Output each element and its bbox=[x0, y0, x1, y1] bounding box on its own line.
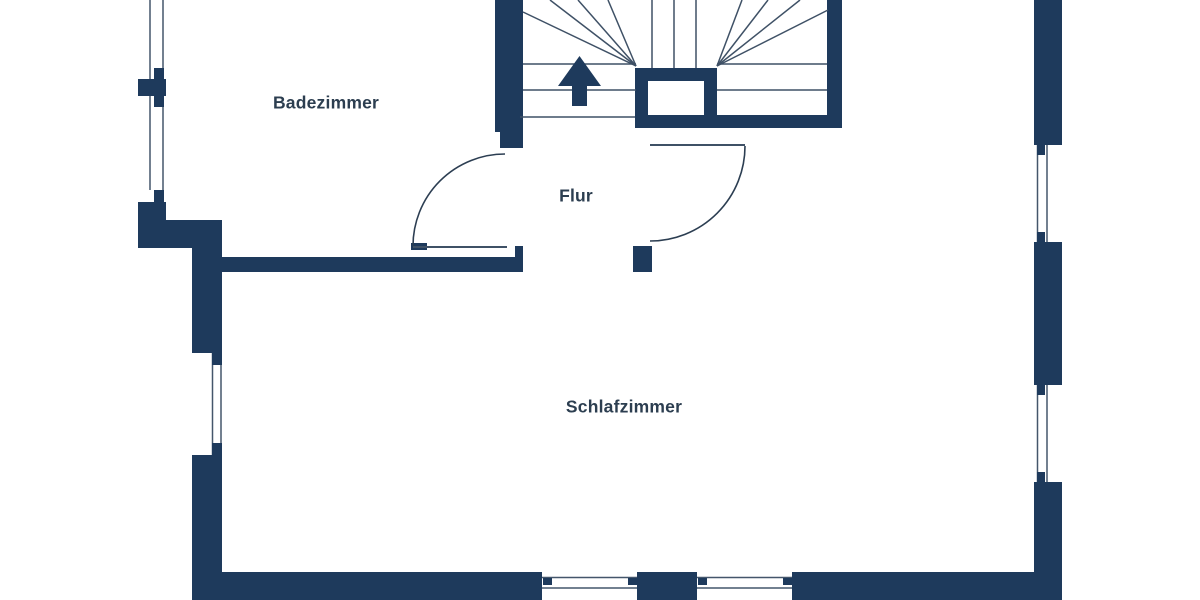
window-end-cap bbox=[154, 68, 164, 80]
wall-segment bbox=[192, 248, 222, 353]
wall-segment bbox=[1034, 482, 1062, 600]
bottom-exterior-wall bbox=[222, 572, 1034, 600]
room-label-badezimmer: Badezimmer bbox=[273, 93, 379, 114]
wall-segment bbox=[192, 455, 222, 600]
window-end-cap bbox=[1037, 385, 1045, 395]
wall-segment bbox=[222, 572, 542, 600]
interior-divider-wall bbox=[222, 246, 652, 272]
stair-winder-line bbox=[717, 0, 768, 66]
arrow-head bbox=[558, 56, 601, 86]
door-swing-arc bbox=[650, 146, 745, 241]
window-end-cap bbox=[212, 353, 222, 365]
corner-wall-block bbox=[138, 202, 166, 248]
window-end-cap bbox=[1037, 232, 1045, 242]
stair-left-wall-foot bbox=[500, 132, 523, 148]
stair-winder-line bbox=[550, 0, 636, 66]
floorplan: Badezimmer Flur Schlafzimmer bbox=[0, 0, 1200, 600]
schlafzimmer-left-wall bbox=[192, 248, 222, 600]
stair-right-wall bbox=[827, 0, 842, 128]
door-jamb-stub bbox=[515, 246, 523, 257]
window-end-cap bbox=[628, 578, 637, 585]
wall-pier bbox=[138, 79, 166, 96]
staircase bbox=[495, 0, 842, 148]
window-end-cap bbox=[212, 443, 222, 455]
badezimmer-door bbox=[411, 154, 507, 250]
wall-segment bbox=[222, 257, 523, 272]
wall-connector bbox=[166, 220, 222, 248]
window-end-cap bbox=[1037, 472, 1045, 482]
flur-door bbox=[650, 145, 745, 241]
door-jamb-block bbox=[633, 246, 652, 272]
door-swing-arc bbox=[413, 154, 505, 246]
right-exterior-wall bbox=[1034, 0, 1062, 600]
stair-core-void bbox=[648, 81, 704, 115]
wall-segment bbox=[637, 572, 697, 600]
room-label-schlafzimmer: Schlafzimmer bbox=[566, 397, 682, 418]
window-end-cap bbox=[543, 578, 552, 585]
window-end-cap bbox=[783, 578, 792, 585]
wall-segment bbox=[792, 572, 1034, 600]
stair-winder-line bbox=[578, 0, 636, 66]
window-end-cap bbox=[1037, 145, 1045, 155]
left-exterior-wall bbox=[138, 0, 222, 248]
arrow-shaft bbox=[572, 84, 587, 106]
room-label-flur: Flur bbox=[559, 186, 593, 207]
wall-segment bbox=[1034, 0, 1062, 145]
window-end-cap bbox=[154, 95, 164, 107]
floorplan-drawing bbox=[0, 0, 1200, 600]
window-end-cap bbox=[698, 578, 707, 585]
wall-segment bbox=[1034, 242, 1062, 385]
window-end-cap bbox=[154, 190, 164, 202]
stair-winder-line bbox=[717, 10, 828, 66]
stair-left-wall bbox=[495, 0, 523, 132]
